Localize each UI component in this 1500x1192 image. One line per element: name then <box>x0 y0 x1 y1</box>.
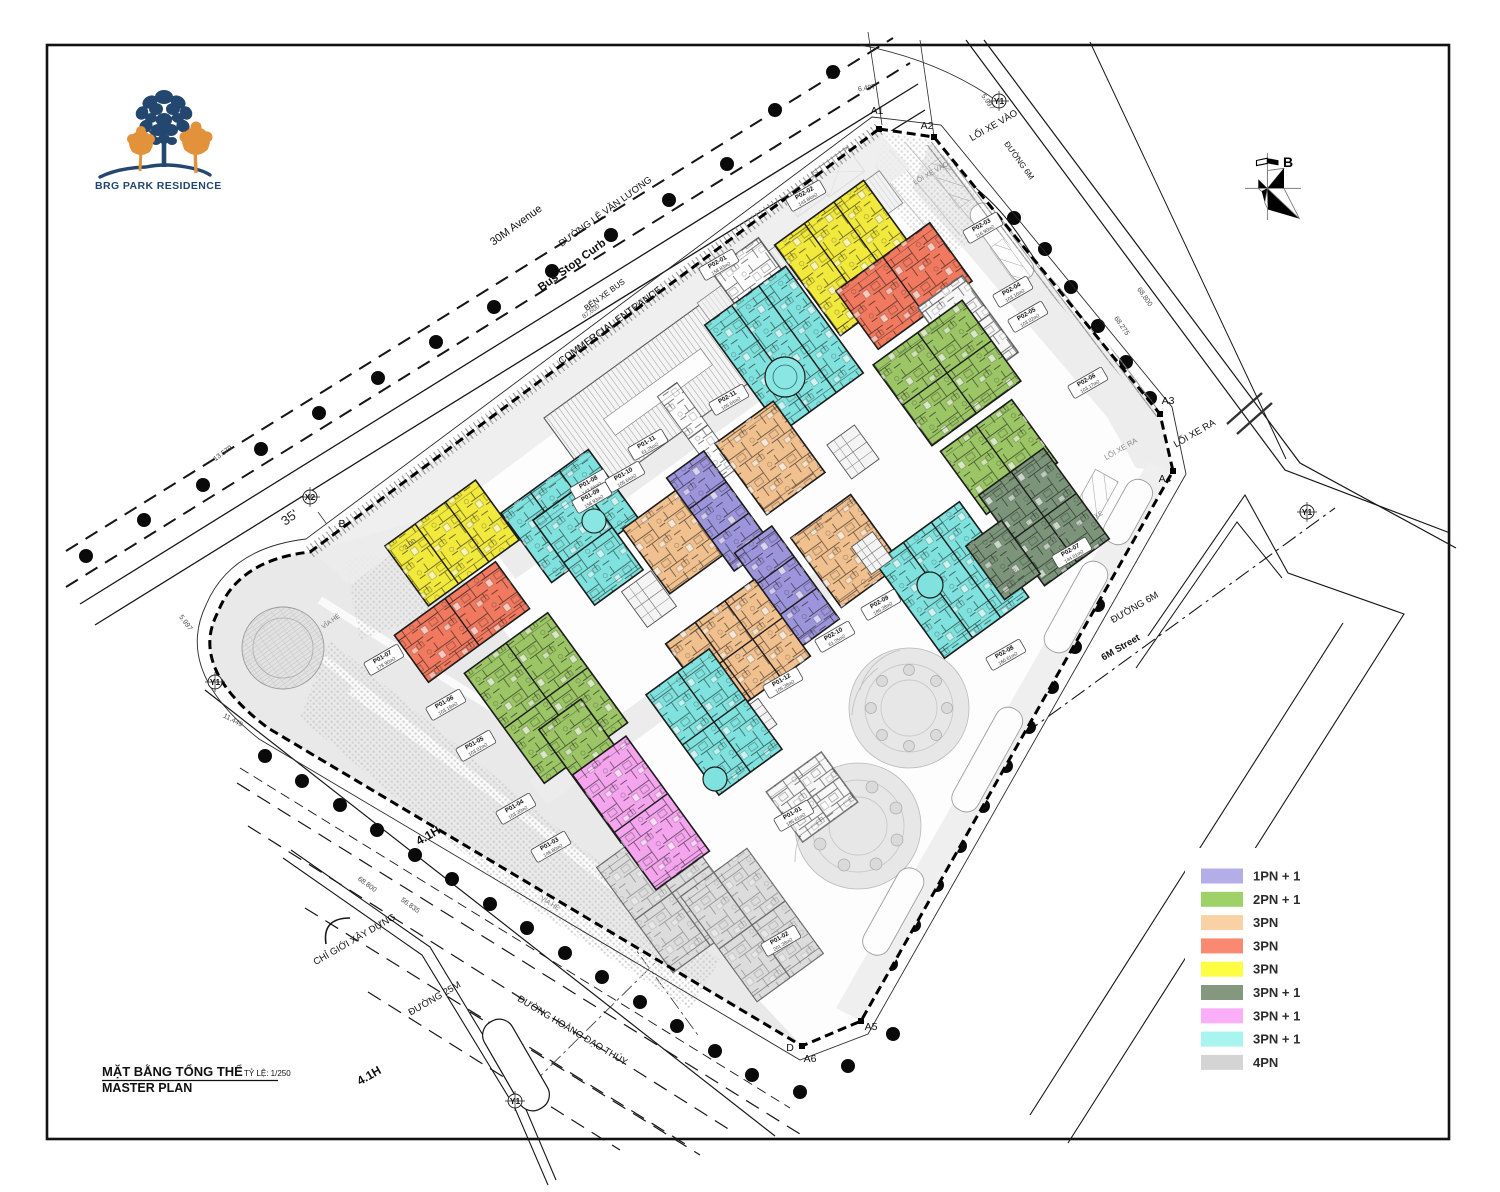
svg-text:A1: A1 <box>871 105 884 117</box>
svg-text:3PN: 3PN <box>1253 915 1278 930</box>
svg-text:A2: A2 <box>921 120 934 132</box>
svg-text:Y1: Y1 <box>510 1096 521 1106</box>
svg-text:6M Street: 6M Street <box>1099 632 1142 663</box>
svg-text:A3: A3 <box>1162 395 1175 407</box>
svg-text:LỐI XE VÀO: LỐI XE VÀO <box>967 107 1019 144</box>
svg-text:4PN: 4PN <box>1253 1055 1278 1070</box>
svg-text:3PN + 1: 3PN + 1 <box>1253 1008 1300 1023</box>
svg-text:B: B <box>1283 154 1293 170</box>
svg-text:1PN + 1: 1PN + 1 <box>1253 869 1300 884</box>
svg-text:MẶT BẰNG TỔNG THỂ: MẶT BẰNG TỔNG THỂ <box>102 1064 243 1079</box>
svg-text:2PN + 1: 2PN + 1 <box>1253 892 1300 907</box>
svg-text:A6: A6 <box>804 1053 817 1065</box>
svg-text:4.1H: 4.1H <box>355 1063 384 1088</box>
svg-text:BẾN XE BUS: BẾN XE BUS <box>582 276 627 312</box>
svg-text:BRG PARK RESIDENCE: BRG PARK RESIDENCE <box>95 180 222 192</box>
svg-text:A4: A4 <box>1159 473 1172 485</box>
svg-text:LỐI XE RA: LỐI XE RA <box>1171 416 1218 450</box>
svg-text:Bus Stop Curb: Bus Stop Curb <box>536 237 608 294</box>
svg-text:Y1: Y1 <box>1302 507 1313 517</box>
svg-text:3PN: 3PN <box>1253 938 1278 953</box>
svg-text:B: B <box>338 518 345 530</box>
svg-text:X2: X2 <box>305 492 316 502</box>
svg-text:Y1: Y1 <box>210 677 221 687</box>
svg-text:TỶ LỆ: 1/250: TỶ LỆ: 1/250 <box>244 1069 291 1078</box>
svg-text:A5: A5 <box>865 1021 878 1033</box>
svg-text:CHỈ GIỚI XÂY DỰNG: CHỈ GIỚI XÂY DỰNG <box>311 911 398 968</box>
svg-text:68.800: 68.800 <box>356 876 378 894</box>
svg-text:MASTER PLAN: MASTER PLAN <box>102 1081 192 1095</box>
svg-text:ĐƯỜNG 6M: ĐƯỜNG 6M <box>1002 140 1036 182</box>
svg-text:56.835: 56.835 <box>399 897 421 915</box>
svg-text:68.275: 68.275 <box>1112 315 1130 337</box>
svg-text:30M Avenue: 30M Avenue <box>488 203 544 249</box>
svg-text:13.579: 13.579 <box>212 445 234 463</box>
svg-text:6.497: 6.497 <box>857 84 876 94</box>
svg-text:3PN + 1: 3PN + 1 <box>1253 1032 1300 1047</box>
svg-text:Y1: Y1 <box>994 96 1005 106</box>
svg-text:D: D <box>786 1042 794 1054</box>
svg-text:ĐƯỜNG 25M: ĐƯỜNG 25M <box>407 979 463 1018</box>
svg-text:5.997: 5.997 <box>177 614 193 632</box>
svg-text:3PN + 1: 3PN + 1 <box>1253 985 1300 1000</box>
svg-text:3PN: 3PN <box>1253 962 1278 977</box>
